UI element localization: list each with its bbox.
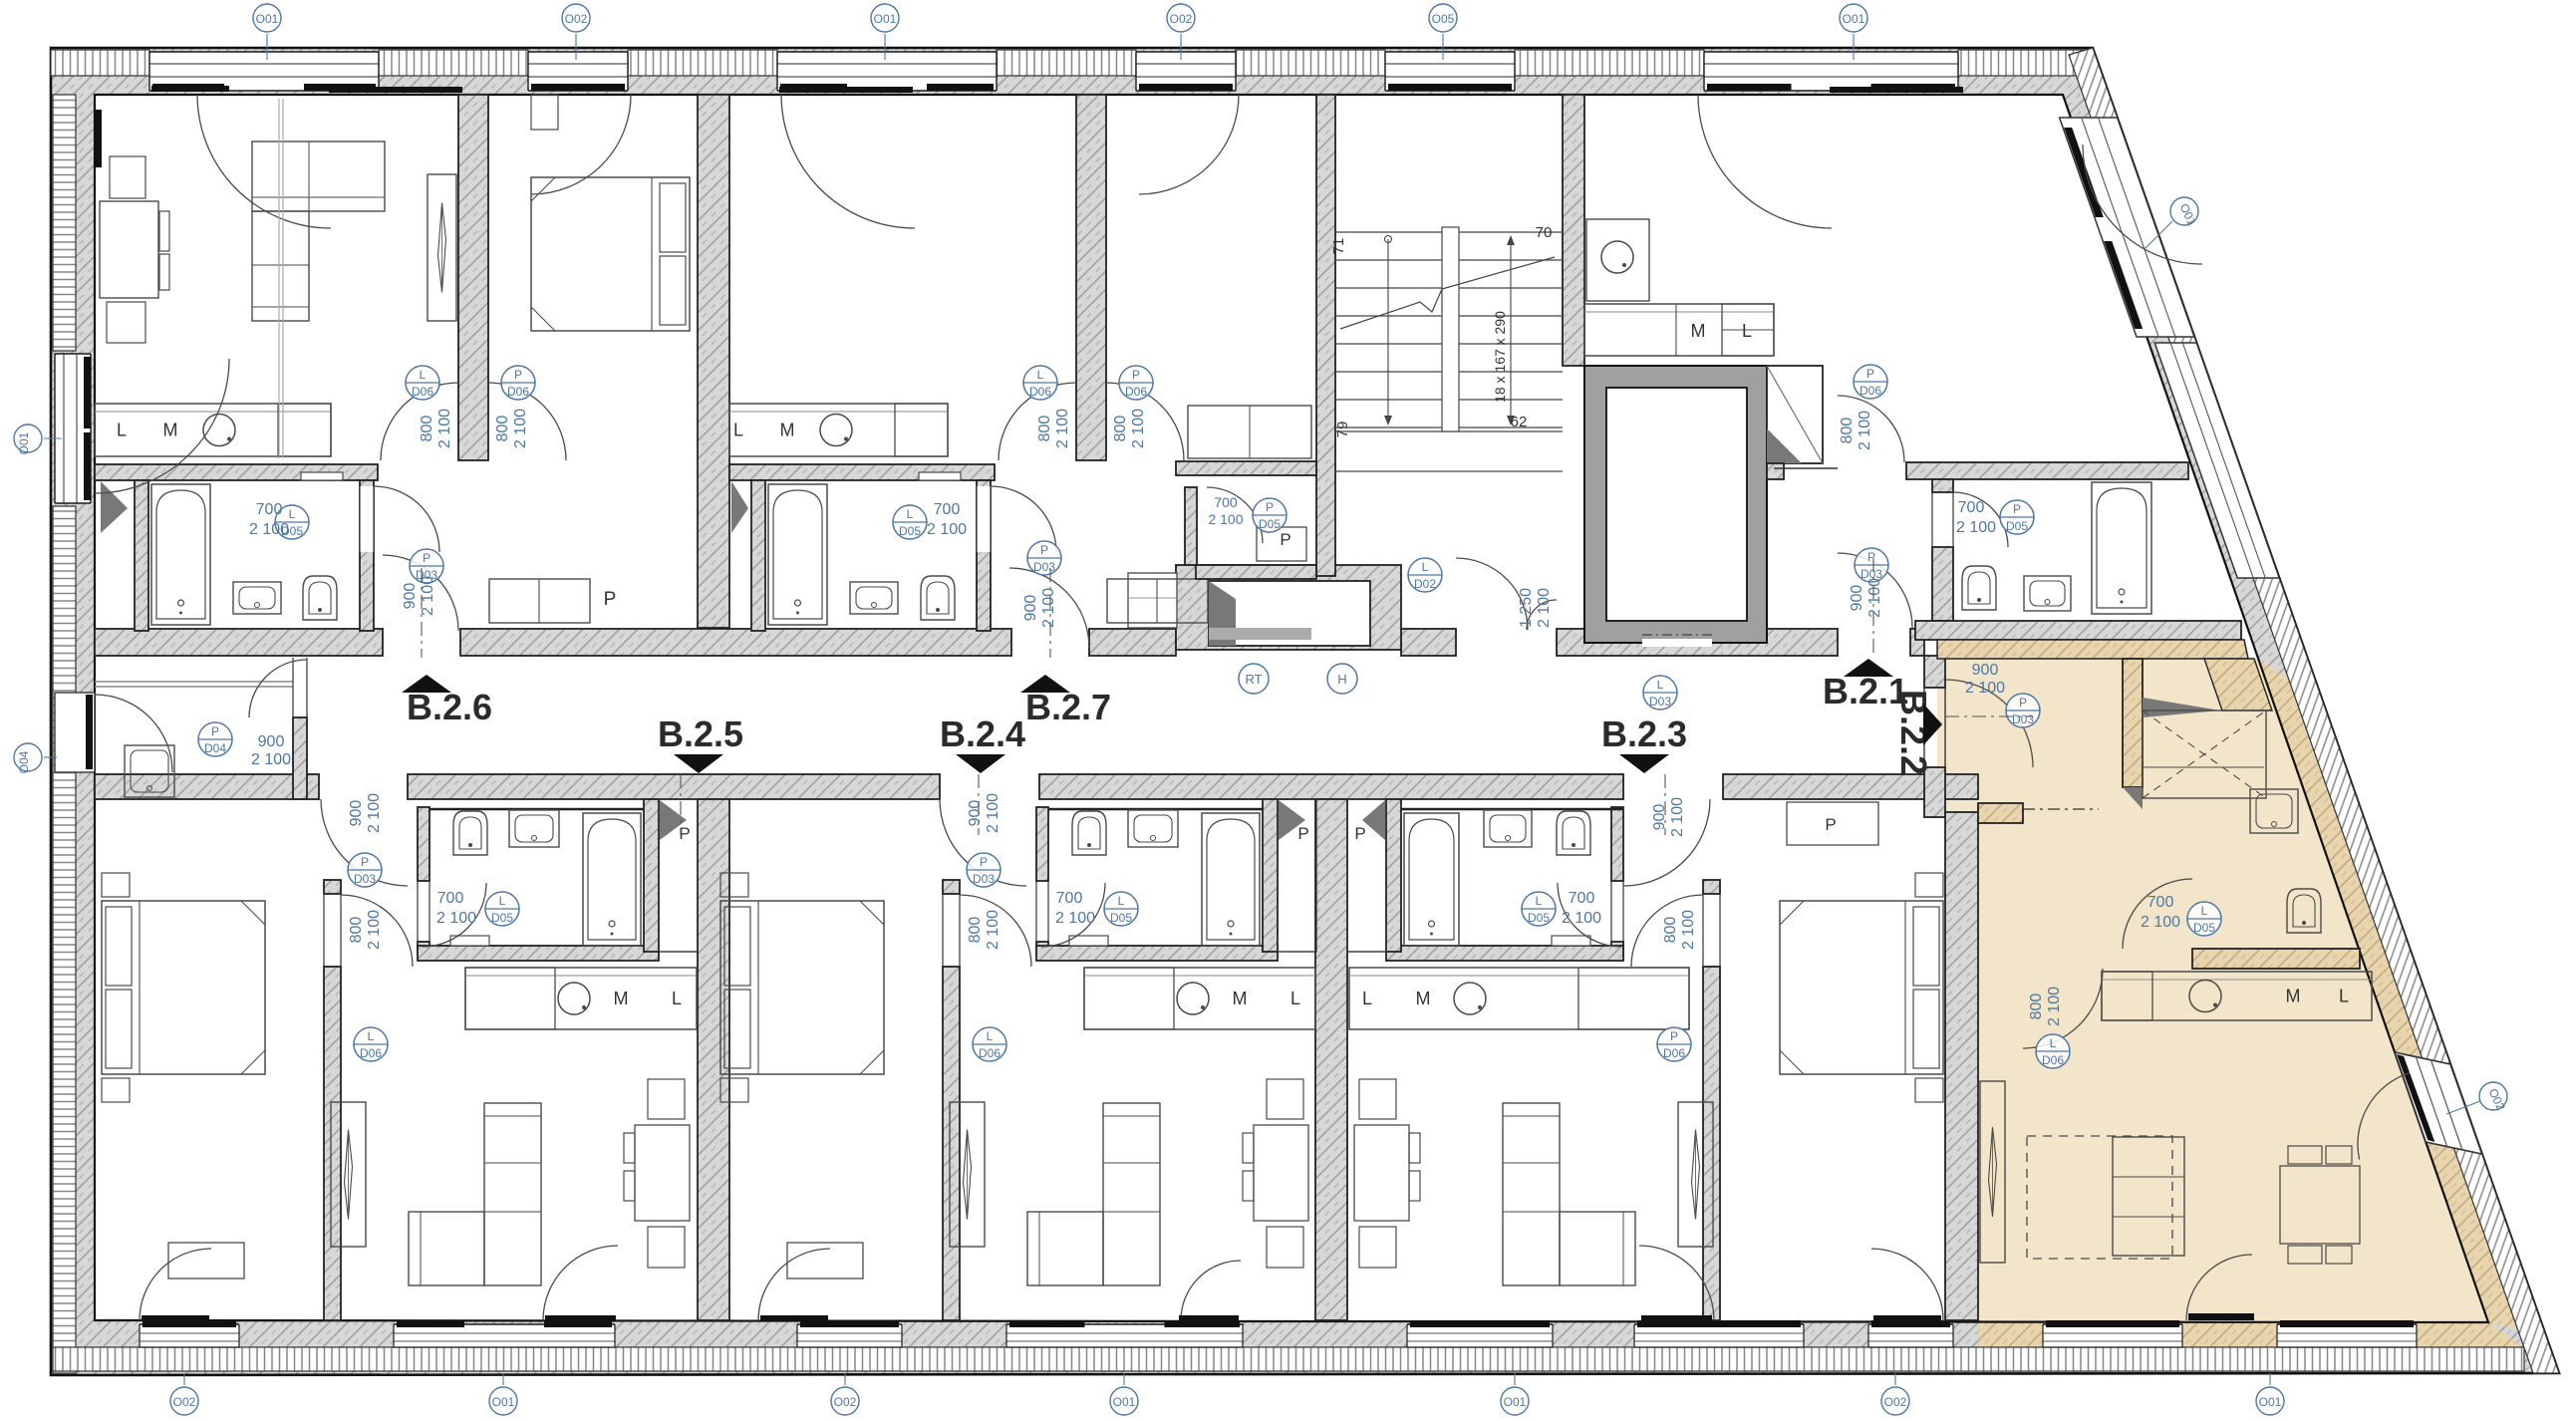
svg-text:800: 800 xyxy=(419,416,435,442)
svg-text:2 100: 2 100 xyxy=(251,751,291,768)
svg-text:P: P xyxy=(2013,502,2021,516)
svg-text:L: L xyxy=(420,368,427,382)
svg-text:O02: O02 xyxy=(173,1395,196,1409)
svg-text:2 100: 2 100 xyxy=(249,521,289,538)
svg-text:H: H xyxy=(1337,672,1346,687)
svg-text:P: P xyxy=(1040,543,1048,557)
svg-text:D06: D06 xyxy=(507,385,529,399)
svg-text:D06: D06 xyxy=(979,1046,1001,1060)
svg-text:L: L xyxy=(2050,1036,2057,1050)
svg-text:700: 700 xyxy=(2147,894,2174,911)
svg-text:D03: D03 xyxy=(1033,560,1055,574)
svg-text:L: L xyxy=(2339,987,2349,1006)
svg-text:O01: O01 xyxy=(1843,12,1865,26)
svg-text:800: 800 xyxy=(2028,994,2045,1020)
svg-text:800: 800 xyxy=(967,917,984,944)
svg-text:2 100: 2 100 xyxy=(2141,914,2180,931)
svg-text:D05: D05 xyxy=(2193,921,2215,935)
svg-text:700: 700 xyxy=(1056,890,1083,907)
svg-text:2 100: 2 100 xyxy=(1562,910,1601,927)
svg-text:2 100: 2 100 xyxy=(927,521,967,538)
svg-text:2 100: 2 100 xyxy=(1055,910,1095,927)
svg-text:79: 79 xyxy=(1334,422,1351,438)
svg-text:D02: D02 xyxy=(1414,577,1436,591)
svg-text:P: P xyxy=(514,368,522,382)
svg-text:800: 800 xyxy=(494,416,511,442)
svg-text:D05: D05 xyxy=(491,911,513,925)
svg-text:700: 700 xyxy=(934,501,961,518)
svg-text:D06: D06 xyxy=(1663,1046,1685,1060)
svg-text:P: P xyxy=(1266,500,1274,514)
svg-text:O01: O01 xyxy=(1113,1395,1136,1409)
svg-text:O02: O02 xyxy=(834,1395,857,1409)
svg-text:700: 700 xyxy=(256,501,283,518)
svg-text:D06: D06 xyxy=(1125,385,1147,399)
svg-text:2 100: 2 100 xyxy=(985,910,1002,950)
svg-text:D06: D06 xyxy=(1860,384,1881,398)
svg-text:L: L xyxy=(1536,894,1543,908)
svg-text:900: 900 xyxy=(402,583,419,610)
svg-text:700: 700 xyxy=(437,890,464,907)
svg-text:L: L xyxy=(1037,368,1044,382)
svg-text:2 100: 2 100 xyxy=(1857,411,1873,450)
svg-text:71: 71 xyxy=(1330,238,1347,255)
svg-text:D05: D05 xyxy=(1259,517,1281,531)
svg-text:18 x 167 x 290: 18 x 167 x 290 xyxy=(1492,311,1508,403)
svg-text:P: P xyxy=(980,855,988,869)
svg-text:L: L xyxy=(907,507,914,521)
svg-text:900: 900 xyxy=(1022,595,1039,622)
svg-text:L: L xyxy=(987,1029,994,1043)
svg-text:D06: D06 xyxy=(1029,385,1051,399)
svg-text:900: 900 xyxy=(967,800,984,827)
svg-text:M: M xyxy=(2286,987,2301,1006)
svg-text:2 100: 2 100 xyxy=(2046,987,2063,1026)
svg-text:800: 800 xyxy=(1839,418,1856,444)
svg-text:L: L xyxy=(117,421,127,440)
svg-text:P: P xyxy=(604,589,617,610)
svg-text:O01: O01 xyxy=(2259,1395,2282,1409)
svg-text:O01: O01 xyxy=(874,12,897,26)
svg-text:B.2.7: B.2.7 xyxy=(1025,687,1111,727)
svg-text:L: L xyxy=(1657,678,1664,692)
svg-text:D04: D04 xyxy=(204,741,226,755)
svg-text:O02: O02 xyxy=(565,12,588,26)
svg-text:900: 900 xyxy=(348,800,365,827)
svg-text:800: 800 xyxy=(1036,416,1053,442)
svg-text:L: L xyxy=(1118,894,1125,908)
svg-text:O02: O02 xyxy=(1884,1395,1907,1409)
svg-text:D06: D06 xyxy=(360,1046,382,1060)
svg-text:L: L xyxy=(289,507,296,521)
svg-text:L: L xyxy=(499,894,506,908)
svg-text:2 100: 2 100 xyxy=(366,910,383,950)
svg-text:P: P xyxy=(423,551,430,565)
svg-text:L: L xyxy=(733,421,743,440)
svg-text:O04: O04 xyxy=(17,750,31,773)
svg-text:2 100: 2 100 xyxy=(1536,588,1553,628)
svg-text:L: L xyxy=(1290,989,1300,1008)
svg-text:2 100: 2 100 xyxy=(436,910,476,927)
svg-text:P: P xyxy=(1670,1029,1678,1043)
svg-text:L: L xyxy=(2201,904,2208,918)
svg-text:P: P xyxy=(2019,696,2027,710)
svg-text:2 100: 2 100 xyxy=(1965,680,2005,697)
svg-text:P: P xyxy=(1825,815,1836,834)
svg-text:P: P xyxy=(1280,530,1290,549)
svg-text:700: 700 xyxy=(1214,494,1238,510)
svg-text:L: L xyxy=(1422,560,1429,574)
svg-text:2 100: 2 100 xyxy=(1040,588,1057,628)
svg-text:D05: D05 xyxy=(899,524,921,538)
svg-text:O01: O01 xyxy=(1504,1395,1527,1409)
svg-text:P: P xyxy=(1132,368,1140,382)
svg-text:800: 800 xyxy=(1112,416,1129,442)
svg-text:B.2.3: B.2.3 xyxy=(1601,713,1687,754)
svg-text:D03: D03 xyxy=(1649,695,1671,709)
svg-text:800: 800 xyxy=(1662,917,1679,944)
svg-text:M: M xyxy=(1233,989,1248,1008)
svg-text:L: L xyxy=(1742,321,1752,341)
svg-text:800: 800 xyxy=(348,917,365,944)
svg-text:2 100: 2 100 xyxy=(1054,409,1071,448)
svg-text:2 100: 2 100 xyxy=(1680,910,1697,950)
svg-text:M: M xyxy=(780,421,795,440)
svg-text:RT: RT xyxy=(1245,672,1262,687)
svg-text:D06: D06 xyxy=(412,385,433,399)
svg-text:P: P xyxy=(1866,367,1874,381)
svg-text:M: M xyxy=(163,421,178,440)
svg-text:900: 900 xyxy=(258,733,285,750)
svg-text:M: M xyxy=(614,989,629,1008)
svg-text:B.2.6: B.2.6 xyxy=(407,687,492,727)
svg-text:D03: D03 xyxy=(2012,712,2034,726)
svg-text:D05: D05 xyxy=(1110,911,1132,925)
svg-text:2 100: 2 100 xyxy=(1669,797,1686,837)
svg-text:2 100: 2 100 xyxy=(1208,511,1243,527)
svg-text:2 100: 2 100 xyxy=(436,409,453,448)
svg-text:M: M xyxy=(1416,989,1431,1008)
svg-text:700: 700 xyxy=(1958,499,1985,516)
svg-text:M: M xyxy=(1691,321,1706,341)
svg-text:2 100: 2 100 xyxy=(1956,519,1996,536)
svg-text:B.2.5: B.2.5 xyxy=(658,713,743,754)
svg-text:2 100: 2 100 xyxy=(366,793,383,833)
svg-text:D05: D05 xyxy=(2006,519,2028,533)
svg-text:O01: O01 xyxy=(492,1395,515,1409)
svg-text:2 100: 2 100 xyxy=(1130,409,1147,448)
svg-text:L: L xyxy=(672,989,682,1008)
svg-text:2 100: 2 100 xyxy=(1866,578,1883,618)
svg-text:P: P xyxy=(1867,550,1875,564)
svg-text:D03: D03 xyxy=(354,872,376,886)
svg-text:70: 70 xyxy=(1536,224,1553,241)
svg-text:900: 900 xyxy=(1972,662,1999,679)
svg-text:L: L xyxy=(368,1029,375,1043)
svg-text:2 100: 2 100 xyxy=(512,409,529,448)
svg-text:O05: O05 xyxy=(1432,12,1455,26)
svg-text:D05: D05 xyxy=(1528,911,1550,925)
svg-text:D06: D06 xyxy=(2042,1053,2064,1067)
svg-text:62: 62 xyxy=(1511,414,1528,430)
svg-text:P: P xyxy=(1297,824,1308,843)
svg-text:O01: O01 xyxy=(256,12,279,26)
svg-text:B.2.4: B.2.4 xyxy=(940,713,1025,754)
svg-text:O01: O01 xyxy=(17,431,31,454)
svg-text:P: P xyxy=(1354,824,1365,843)
svg-text:P: P xyxy=(211,724,219,738)
svg-text:L: L xyxy=(1362,989,1372,1008)
svg-text:P: P xyxy=(361,855,369,869)
svg-text:O02: O02 xyxy=(1170,12,1193,26)
svg-text:700: 700 xyxy=(1569,890,1595,907)
svg-text:1 250: 1 250 xyxy=(1518,588,1535,628)
svg-text:900: 900 xyxy=(1849,585,1865,612)
svg-text:2 100: 2 100 xyxy=(985,793,1002,833)
svg-text:D03: D03 xyxy=(973,872,995,886)
